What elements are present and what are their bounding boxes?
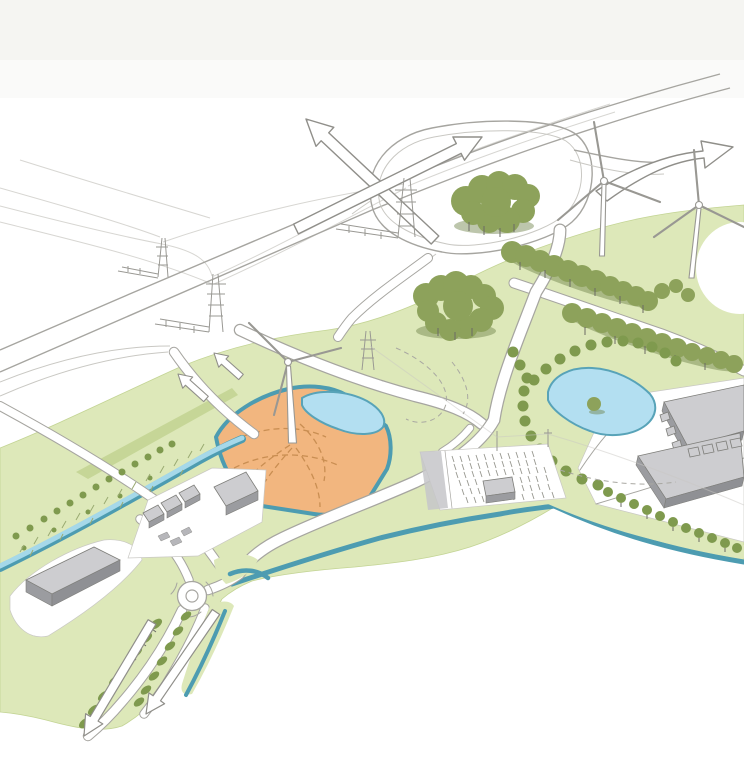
sketch-svg (0, 0, 744, 760)
tree-belt-interchange (451, 171, 540, 237)
sky-wash (0, 0, 744, 98)
wash-band-lower (0, 60, 744, 98)
site-sketch-illustration (0, 0, 744, 760)
arrow-up-right (294, 137, 482, 234)
parking-building (483, 477, 515, 503)
pond-island-tree (587, 397, 601, 411)
wash-band-top (0, 0, 744, 60)
